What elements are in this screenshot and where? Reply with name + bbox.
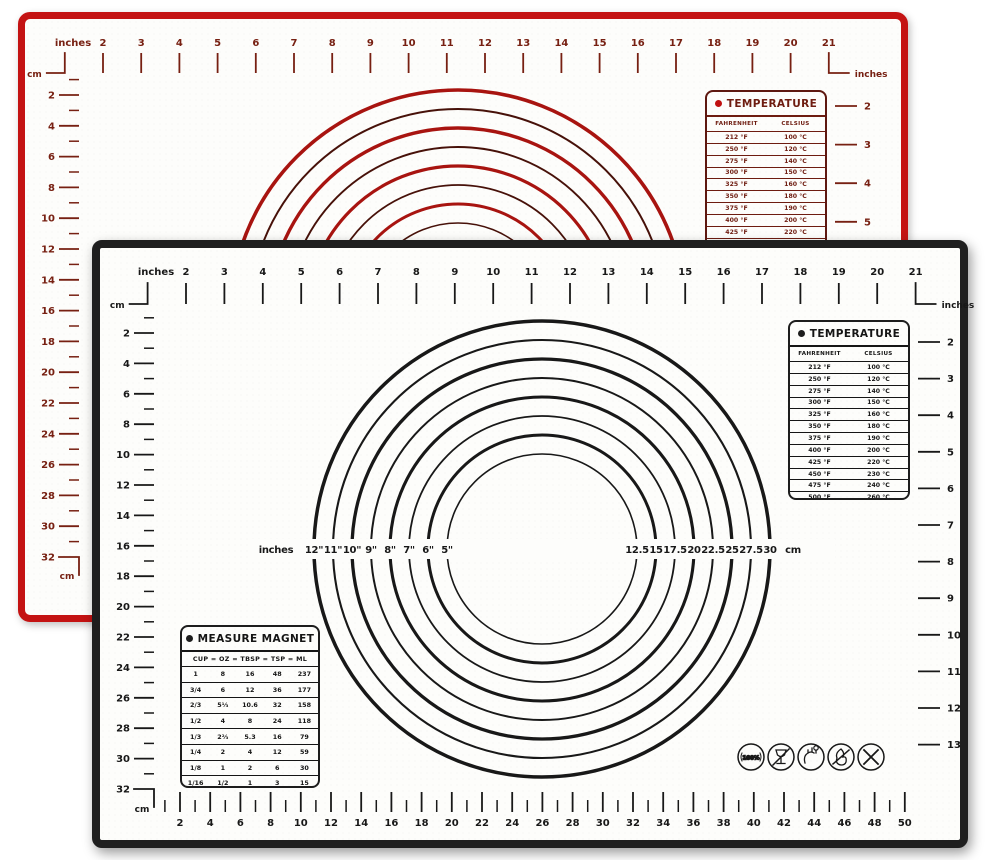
ruler-number: 17 bbox=[755, 267, 769, 278]
fahrenheit-value: 300 °F bbox=[707, 169, 766, 176]
ruler-number: 18 bbox=[41, 337, 55, 348]
circle-cm-label: 17.5 bbox=[663, 545, 687, 556]
fahrenheit-value: 300 °F bbox=[790, 399, 849, 406]
ruler-number: 15 bbox=[593, 38, 607, 49]
ml-value: 177 bbox=[291, 686, 318, 694]
table-row: 325 °F160 °C bbox=[707, 179, 825, 191]
table-row: 275 °F140 °C bbox=[790, 386, 908, 398]
table-row: 250 °F120 °C bbox=[790, 374, 908, 386]
oz-value: 2⅔ bbox=[209, 733, 236, 741]
celsius-column-header: CELSIUS bbox=[766, 121, 825, 127]
ruler-number: 21 bbox=[909, 267, 923, 278]
badge-100-percent-icon: 100% bbox=[738, 744, 764, 770]
ruler-number: 2 bbox=[123, 329, 130, 340]
ml-value: 118 bbox=[291, 717, 318, 725]
ruler-number: 5 bbox=[947, 447, 954, 458]
ruler-number: 4 bbox=[864, 179, 871, 190]
ruler-number: 44 bbox=[807, 818, 821, 829]
ruler-number: 12 bbox=[563, 267, 577, 278]
cup-value: 3/4 bbox=[182, 686, 209, 694]
ruler-number: 20 bbox=[116, 602, 130, 613]
celsius-value: 240 °C bbox=[849, 482, 908, 489]
circle-unit-label: inches bbox=[259, 545, 294, 556]
cup-value: 1/16 bbox=[182, 779, 209, 787]
ruler-number: 12 bbox=[324, 818, 338, 829]
ruler-number: 4 bbox=[207, 818, 214, 829]
tsp-value: 32 bbox=[264, 701, 291, 709]
no-glass-icon bbox=[768, 744, 794, 770]
ruler-number: 14 bbox=[554, 38, 568, 49]
table-row: 350 °F180 °C bbox=[790, 421, 908, 433]
fahrenheit-value: 375 °F bbox=[707, 205, 766, 212]
oz-value: 4 bbox=[209, 717, 236, 725]
tsp-value: 24 bbox=[264, 717, 291, 725]
ruler-number: 24 bbox=[41, 429, 55, 440]
measure-rows: 1816482373/4612361772/35⅓10.6321581/2482… bbox=[182, 667, 318, 788]
ruler-number: 32 bbox=[116, 785, 130, 796]
table-row: 375 °F190 °C bbox=[707, 203, 825, 215]
ruler-number: 11 bbox=[440, 38, 454, 49]
ruler-number: 36 bbox=[686, 818, 700, 829]
circle-inch-label: 8" bbox=[384, 545, 396, 556]
black-pastry-mat: inchescm23456789101112131415161718192021… bbox=[92, 240, 968, 848]
tbsp-value: 10.6 bbox=[236, 701, 263, 709]
ruler-number: 2 bbox=[100, 38, 107, 49]
ruler-unit-label: inches bbox=[55, 38, 91, 49]
table-row: 450 °F230 °C bbox=[790, 469, 908, 481]
ruler-number: 8 bbox=[413, 267, 420, 278]
temperature-table-header: FAHRENHEIT CELSIUS bbox=[707, 117, 825, 132]
circle-cm-label: 12.5 bbox=[625, 545, 649, 556]
ruler-corner bbox=[130, 283, 148, 304]
ruler-number: 5 bbox=[214, 38, 221, 49]
ruler-number: 6 bbox=[252, 38, 259, 49]
celsius-value: 220 °C bbox=[849, 459, 908, 466]
ruler-number: 10 bbox=[947, 630, 961, 641]
ruler-number: 20 bbox=[784, 38, 798, 49]
table-row: 475 °F240 °C bbox=[790, 480, 908, 492]
celsius-value: 150 °C bbox=[766, 169, 825, 176]
cup-value: 1/3 bbox=[182, 733, 209, 741]
ruler-number: 3 bbox=[947, 374, 954, 385]
ruler-number: 7 bbox=[291, 38, 298, 49]
ruler-number: 9 bbox=[451, 267, 458, 278]
ruler-number: 26 bbox=[535, 818, 549, 829]
cup-value: 1/2 bbox=[182, 717, 209, 725]
ruler-number: 11 bbox=[947, 667, 961, 678]
ruler-number: 4 bbox=[48, 121, 55, 132]
circle-cm-label: 20 bbox=[687, 545, 701, 556]
ml-value: 59 bbox=[291, 748, 318, 756]
circle-inch-label: 7" bbox=[403, 545, 415, 556]
ruler-number: 19 bbox=[745, 38, 759, 49]
cup-value: 1 bbox=[182, 670, 209, 678]
ruler-number: 16 bbox=[717, 267, 731, 278]
circle-cm-label: 30 bbox=[763, 545, 777, 556]
flame-resistant-icon bbox=[828, 744, 854, 770]
ruler-number: 21 bbox=[822, 38, 836, 49]
certification-icons: 100% bbox=[738, 744, 884, 770]
ruler-number: 11 bbox=[525, 267, 539, 278]
ruler-number: 16 bbox=[116, 541, 130, 552]
ruler-number: 30 bbox=[596, 818, 610, 829]
ruler-number: 10 bbox=[294, 818, 308, 829]
fahrenheit-value: 475 °F bbox=[790, 482, 849, 489]
tsp-value: 3 bbox=[264, 779, 291, 787]
celsius-value: 100 °C bbox=[849, 364, 908, 371]
circle-inch-label: 12" bbox=[305, 545, 323, 556]
tbsp-value: 8 bbox=[236, 717, 263, 725]
fahrenheit-value: 350 °F bbox=[790, 423, 849, 430]
ruler-number: 3 bbox=[864, 140, 871, 151]
table-row: 400 °F200 °C bbox=[707, 215, 825, 227]
ruler-number: 30 bbox=[41, 522, 55, 533]
ruler-number: 22 bbox=[116, 633, 130, 644]
ruler-number: 8 bbox=[947, 557, 954, 568]
ruler-unit-label: inches bbox=[942, 301, 975, 311]
food-safe-hand-icon bbox=[798, 744, 824, 770]
circle-cm-label: 22.5 bbox=[701, 545, 725, 556]
cup-value: 1/4 bbox=[182, 748, 209, 756]
oz-value: 8 bbox=[209, 670, 236, 678]
tbsp-value: 4 bbox=[236, 748, 263, 756]
tbsp-value: 1 bbox=[236, 779, 263, 787]
fahrenheit-value: 325 °F bbox=[790, 411, 849, 418]
circle-size-labels: inches12"11"10"9"8"7"6"5"12.51517.52022.… bbox=[250, 539, 835, 559]
celsius-value: 180 °C bbox=[766, 193, 825, 200]
ruler-unit-label: cm bbox=[135, 805, 150, 815]
celsius-value: 160 °C bbox=[849, 411, 908, 418]
ruler-number: 28 bbox=[116, 724, 130, 735]
temperature-table-title: TEMPERATURE bbox=[790, 322, 908, 347]
ruler-number: 20 bbox=[445, 818, 459, 829]
ruler-number: 16 bbox=[631, 38, 645, 49]
table-row: 425 °F220 °C bbox=[790, 457, 908, 469]
fahrenheit-value: 450 °F bbox=[790, 471, 849, 478]
oz-value: 1/2 bbox=[209, 779, 236, 787]
tbsp-value: 5.3 bbox=[236, 733, 263, 741]
fahrenheit-value: 212 °F bbox=[790, 364, 849, 371]
ruler-number: 46 bbox=[837, 818, 851, 829]
ruler-number: 12 bbox=[947, 704, 961, 715]
celsius-value: 140 °C bbox=[766, 158, 825, 165]
celsius-value: 260 °C bbox=[849, 494, 908, 500]
circle-unit-label: cm bbox=[785, 545, 801, 556]
ruler-number: 10 bbox=[41, 214, 55, 225]
ruler-corner bbox=[864, 750, 878, 764]
ruler-number: 32 bbox=[41, 553, 55, 564]
table-row: 2/35⅓10.632158 bbox=[182, 698, 318, 714]
table-row: 375 °F190 °C bbox=[790, 433, 908, 445]
ruler-number: 30 bbox=[116, 754, 130, 765]
tsp-value: 48 bbox=[264, 670, 291, 678]
ruler-number: 28 bbox=[41, 491, 55, 502]
celsius-value: 200 °C bbox=[766, 217, 825, 224]
oz-value: 1 bbox=[209, 764, 236, 772]
circle-inch-label: 9" bbox=[365, 545, 377, 556]
tsp-value: 6 bbox=[264, 764, 291, 772]
table-row: 500 °F260 °C bbox=[790, 492, 908, 500]
ruler-number: 8 bbox=[48, 183, 55, 194]
ruler-number: 18 bbox=[415, 818, 429, 829]
ruler-number: 18 bbox=[707, 38, 721, 49]
measure-formula-text: CUP = OZ = TBSP = TSP = ML bbox=[182, 655, 318, 663]
fahrenheit-value: 425 °F bbox=[790, 459, 849, 466]
ruler-number: 18 bbox=[793, 267, 807, 278]
ml-value: 237 bbox=[291, 670, 318, 678]
tbsp-value: 2 bbox=[236, 764, 263, 772]
ruler-unit-label: inches bbox=[855, 70, 888, 80]
thermometer-dot-icon bbox=[798, 330, 805, 337]
circle-inch-label: 11" bbox=[324, 545, 342, 556]
ruler-number: 2 bbox=[48, 91, 55, 102]
celsius-value: 220 °C bbox=[766, 229, 825, 236]
ruler-number: 13 bbox=[516, 38, 530, 49]
fahrenheit-value: 275 °F bbox=[707, 158, 766, 165]
ruler-number: 7 bbox=[375, 267, 382, 278]
ruler-number: 5 bbox=[298, 267, 305, 278]
ruler-corner bbox=[916, 283, 936, 304]
celsius-value: 190 °C bbox=[766, 205, 825, 212]
table-row: 1/32⅔5.31679 bbox=[182, 729, 318, 745]
celsius-value: 200 °C bbox=[849, 447, 908, 454]
tbsp-value: 12 bbox=[236, 686, 263, 694]
ruler-number: 2 bbox=[947, 338, 954, 349]
ruler-number: 12 bbox=[478, 38, 492, 49]
ruler-number: 14 bbox=[41, 275, 55, 286]
table-row: 212 °F100 °C bbox=[790, 362, 908, 374]
ruler-number: 26 bbox=[41, 460, 55, 471]
ruler-number: 3 bbox=[221, 267, 228, 278]
circle-cm-label: 25 bbox=[725, 545, 739, 556]
ruler-unit-label: cm bbox=[60, 572, 75, 582]
celsius-value: 230 °C bbox=[849, 471, 908, 478]
table-row: 181648237 bbox=[182, 667, 318, 683]
fahrenheit-column-header: FAHRENHEIT bbox=[790, 351, 849, 357]
celsius-value: 190 °C bbox=[849, 435, 908, 442]
thermometer-dot-icon bbox=[715, 100, 722, 107]
celsius-value: 140 °C bbox=[849, 388, 908, 395]
ruler-number: 13 bbox=[947, 740, 961, 751]
ruler-number: 15 bbox=[678, 267, 692, 278]
table-row: 425 °F220 °C bbox=[707, 227, 825, 239]
celsius-value: 150 °C bbox=[849, 399, 908, 406]
ml-value: 158 bbox=[291, 701, 318, 709]
table-row: 1/812630 bbox=[182, 761, 318, 777]
ruler-corner bbox=[804, 748, 816, 763]
ruler-number: 6 bbox=[336, 267, 343, 278]
ruler-number: 14 bbox=[354, 818, 368, 829]
ruler-number: 12 bbox=[116, 481, 130, 492]
tbsp-value: 16 bbox=[236, 670, 263, 678]
table-row: 350 °F180 °C bbox=[707, 191, 825, 203]
ruler-number: 2 bbox=[183, 267, 190, 278]
ruler-number: 3 bbox=[138, 38, 145, 49]
ruler-number: 38 bbox=[717, 818, 731, 829]
ruler-number: 24 bbox=[505, 818, 519, 829]
ruler-number: 10 bbox=[486, 267, 500, 278]
ruler-number: 14 bbox=[116, 511, 130, 522]
ruler-corner bbox=[829, 53, 849, 73]
circle-inch-label: 6" bbox=[422, 545, 434, 556]
circle-cm-label: 15 bbox=[649, 545, 663, 556]
ruler-number: 6 bbox=[237, 818, 244, 829]
tsp-value: 36 bbox=[264, 686, 291, 694]
circle-cm-label: 27.5 bbox=[739, 545, 763, 556]
measure-title-text: MEASURE MAGNET bbox=[198, 633, 315, 645]
celsius-value: 180 °C bbox=[849, 423, 908, 430]
fahrenheit-value: 425 °F bbox=[707, 229, 766, 236]
ruler-number: 19 bbox=[832, 267, 846, 278]
ruler-number: 2 bbox=[864, 102, 871, 113]
celsius-value: 160 °C bbox=[766, 181, 825, 188]
product-photo-pastry-mats: { "colors": { "red_border": "#c41313", "… bbox=[0, 0, 1001, 860]
temperature-table-title: TEMPERATURE bbox=[707, 92, 825, 117]
cup-value: 2/3 bbox=[182, 701, 209, 709]
ruler-number: 12 bbox=[41, 245, 55, 256]
fahrenheit-value: 400 °F bbox=[790, 447, 849, 454]
celsius-column-header: CELSIUS bbox=[849, 351, 908, 357]
ruler-unit-label: cm bbox=[110, 301, 125, 311]
ruler-number: 8 bbox=[267, 818, 274, 829]
fahrenheit-value: 375 °F bbox=[790, 435, 849, 442]
no-cutlery-icon bbox=[858, 744, 884, 770]
ruler-number: 26 bbox=[116, 693, 130, 704]
ruler-number: 18 bbox=[116, 572, 130, 583]
table-row: 325 °F160 °C bbox=[790, 409, 908, 421]
ruler-number: 42 bbox=[777, 818, 791, 829]
table-row: 3/461236177 bbox=[182, 683, 318, 699]
measure-table-header: CUP = OZ = TBSP = TSP = ML bbox=[182, 652, 318, 667]
fahrenheit-value: 400 °F bbox=[707, 217, 766, 224]
ruler-number: 8 bbox=[123, 420, 130, 431]
fahrenheit-column-header: FAHRENHEIT bbox=[707, 121, 766, 127]
ruler-number: 16 bbox=[41, 306, 55, 317]
ruler-number: 40 bbox=[747, 818, 761, 829]
ml-value: 15 bbox=[291, 779, 318, 787]
ruler-corner bbox=[47, 53, 65, 73]
ruler-number: 16 bbox=[384, 818, 398, 829]
ruler-number: 2 bbox=[177, 818, 184, 829]
table-row: 212 °F100 °C bbox=[707, 132, 825, 144]
ruler-number: 6 bbox=[123, 389, 130, 400]
ruler-number: 10 bbox=[116, 450, 130, 461]
ml-value: 30 bbox=[291, 764, 318, 772]
table-row: 275 °F140 °C bbox=[707, 156, 825, 168]
cup-value: 1/8 bbox=[182, 764, 209, 772]
ruler-number: 10 bbox=[402, 38, 416, 49]
oz-value: 6 bbox=[209, 686, 236, 694]
tsp-value: 12 bbox=[264, 748, 291, 756]
ruler-number: 9 bbox=[947, 594, 954, 605]
circle-inch-label: 10" bbox=[343, 545, 361, 556]
table-row: 400 °F200 °C bbox=[790, 445, 908, 457]
ruler-number: 8 bbox=[329, 38, 336, 49]
temperature-rows: 212 °F100 °C250 °F120 °C275 °F140 °C300 … bbox=[790, 362, 908, 500]
ruler-number: 5 bbox=[864, 217, 871, 228]
ruler-number: 13 bbox=[601, 267, 615, 278]
ruler-number: 22 bbox=[475, 818, 489, 829]
ruler-number: 4 bbox=[259, 267, 266, 278]
ruler-number: 14 bbox=[640, 267, 654, 278]
measure-table-title: MEASURE MAGNET bbox=[182, 627, 318, 652]
table-row: 300 °F150 °C bbox=[790, 398, 908, 410]
oz-value: 5⅓ bbox=[209, 701, 236, 709]
fahrenheit-value: 212 °F bbox=[707, 134, 766, 141]
temperature-title-text: TEMPERATURE bbox=[727, 98, 817, 110]
fahrenheit-value: 250 °F bbox=[707, 146, 766, 153]
ruler-number: 6 bbox=[48, 152, 55, 163]
table-row: 1/24824118 bbox=[182, 714, 318, 730]
circle-inch-label: 5" bbox=[441, 545, 453, 556]
oz-value: 2 bbox=[209, 748, 236, 756]
fahrenheit-value: 250 °F bbox=[790, 376, 849, 383]
table-row: 300 °F150 °C bbox=[707, 168, 825, 180]
table-row: 250 °F120 °C bbox=[707, 144, 825, 156]
celsius-value: 120 °C bbox=[849, 376, 908, 383]
table-row: 1/4241259 bbox=[182, 745, 318, 761]
ruler-number: 9 bbox=[367, 38, 374, 49]
ruler-number: 28 bbox=[566, 818, 580, 829]
temperature-table-black: TEMPERATURE FAHRENHEIT CELSIUS 212 °F100… bbox=[788, 320, 910, 500]
table-row: 1/161/21315 bbox=[182, 776, 318, 788]
fahrenheit-value: 325 °F bbox=[707, 181, 766, 188]
ruler-unit-label: inches bbox=[138, 267, 174, 278]
tsp-value: 16 bbox=[264, 733, 291, 741]
temperature-table-header: FAHRENHEIT CELSIUS bbox=[790, 347, 908, 362]
ruler-unit-label: cm bbox=[27, 70, 42, 80]
ruler-number: 4 bbox=[123, 359, 130, 370]
temperature-title-text: TEMPERATURE bbox=[810, 328, 900, 340]
ruler-number: 17 bbox=[669, 38, 683, 49]
ruler-number: 6 bbox=[947, 484, 954, 495]
ruler-number: 50 bbox=[898, 818, 912, 829]
measure-magnet-table: MEASURE MAGNET CUP = OZ = TBSP = TSP = M… bbox=[180, 625, 320, 788]
ruler-number: 22 bbox=[41, 399, 55, 410]
ruler-number: 4 bbox=[176, 38, 183, 49]
fahrenheit-value: 350 °F bbox=[707, 193, 766, 200]
celsius-value: 100 °C bbox=[766, 134, 825, 141]
celsius-value: 120 °C bbox=[766, 146, 825, 153]
ruler-number: 34 bbox=[656, 818, 670, 829]
ruler-number: 20 bbox=[41, 368, 55, 379]
ruler-number: 32 bbox=[626, 818, 640, 829]
measure-dot-icon bbox=[186, 635, 193, 642]
fahrenheit-value: 500 °F bbox=[790, 494, 849, 500]
ml-value: 79 bbox=[291, 733, 318, 741]
ruler-number: 24 bbox=[116, 663, 130, 674]
ruler-number: 7 bbox=[947, 521, 954, 532]
ruler-number: 20 bbox=[870, 267, 884, 278]
ruler-number: 4 bbox=[947, 411, 954, 422]
badge-label: 100% bbox=[743, 756, 760, 762]
fahrenheit-value: 275 °F bbox=[790, 388, 849, 395]
ruler-number: 48 bbox=[868, 818, 882, 829]
